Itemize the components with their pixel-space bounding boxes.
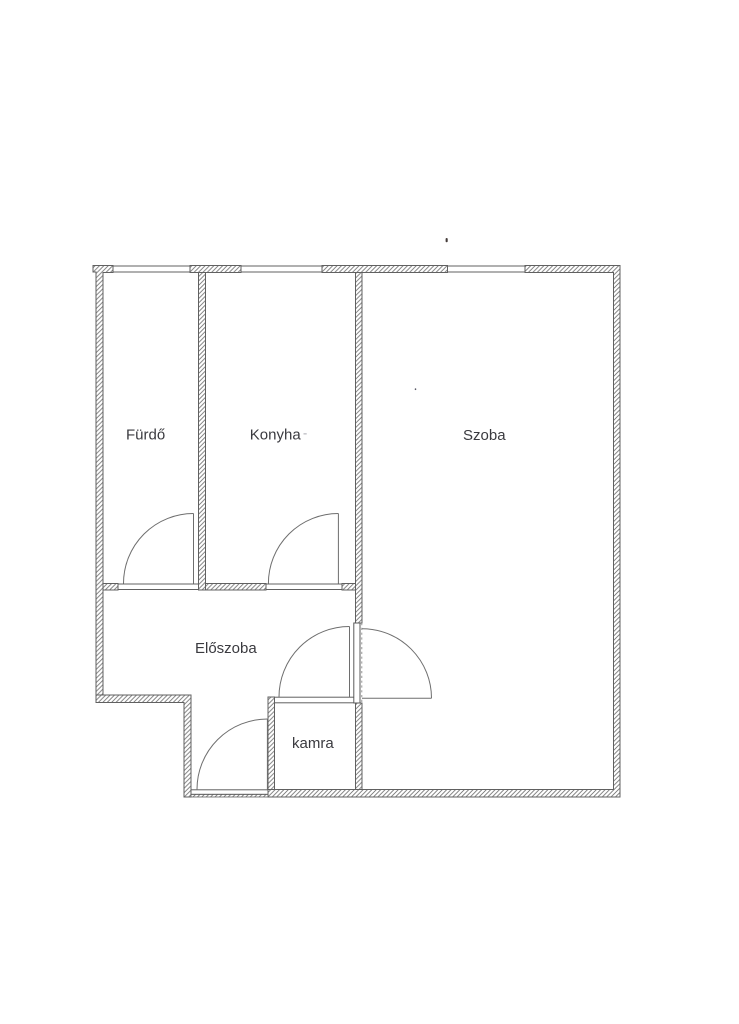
- svg-text:Fürdő: Fürdő: [126, 427, 165, 444]
- svg-text:Konyha: Konyha: [250, 427, 302, 444]
- svg-text:Előszoba: Előszoba: [195, 640, 257, 657]
- svg-text:Szoba: Szoba: [463, 427, 506, 444]
- svg-text:kamra: kamra: [292, 735, 334, 752]
